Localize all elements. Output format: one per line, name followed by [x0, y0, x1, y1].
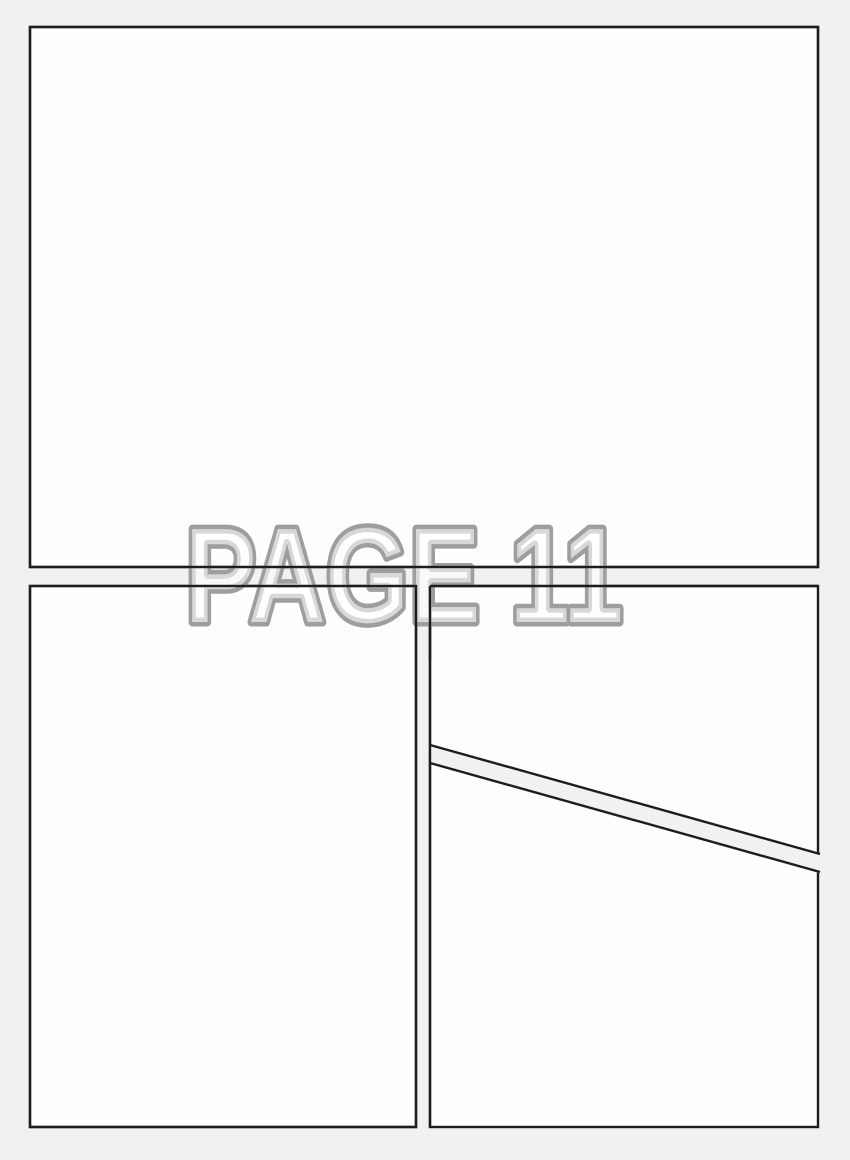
- page-label: PAGE 11: [185, 500, 623, 651]
- panel-bottom-left[interactable]: [30, 586, 416, 1127]
- comic-page-template: PAGE 11: [0, 0, 850, 1160]
- panel-top[interactable]: [30, 27, 818, 567]
- panel-bottom-right[interactable]: [430, 586, 818, 1127]
